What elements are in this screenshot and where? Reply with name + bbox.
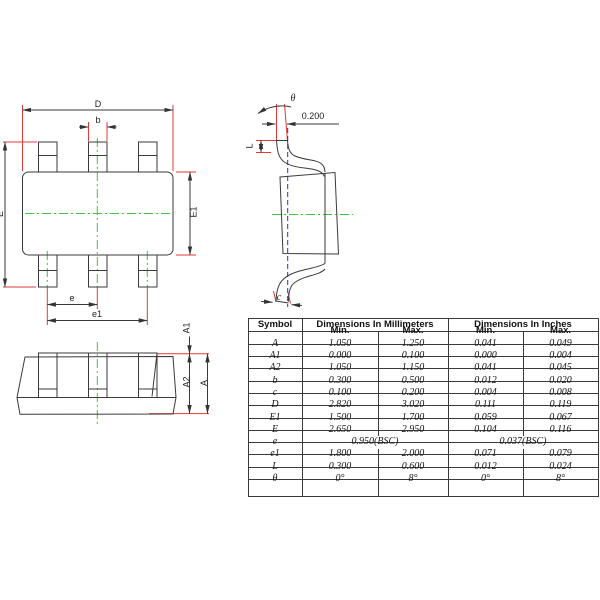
table-row: θ 0° 8° 0° 8° (248, 473, 598, 485)
dim-label-theta: θ (287, 93, 299, 104)
cell-mm-max: 3.020 (378, 399, 448, 411)
cell-in-max: 0.119 (523, 399, 598, 411)
table-row: A 1.050 1.250 0.041 0.049 (248, 338, 598, 350)
cell-in-max: 0.079 (523, 448, 598, 460)
cell-in-min: 0.012 (448, 461, 523, 473)
cell-mm-max: 0.100 (378, 350, 448, 362)
cell-in-max: 0.008 (523, 387, 598, 399)
cell-in-min: 0.004 (448, 387, 523, 399)
dim-label-E: E (0, 209, 6, 219)
table-row: L 0.300 0.600 0.012 0.024 (248, 461, 598, 473)
centerlines (25, 138, 171, 288)
dim-label-A1: A1 (179, 323, 194, 333)
side-extension-lines (256, 104, 291, 304)
cell-mm-max: 1.700 (378, 412, 448, 424)
height-dimensions (190, 337, 208, 414)
cell-in-max: 0.045 (523, 362, 598, 374)
cell-symbol: b (248, 375, 302, 387)
cell-mm-min: 0.100 (302, 387, 378, 399)
cell-in-min: 0.111 (448, 399, 523, 411)
cell-mm-min: 2.820 (302, 399, 378, 411)
cell-symbol: D (248, 399, 302, 411)
dim-label-b: b (92, 115, 104, 125)
table-border-right (598, 318, 599, 497)
table-row: A2 1.050 1.150 0.041 0.045 (248, 362, 598, 374)
dimensions-table: Symbol Dimensions In Millimeters Dimensi… (248, 318, 599, 497)
cell-mm-max: 8° (378, 473, 448, 485)
drawing-canvas (0, 0, 600, 600)
cell-mm-bsc: 0.950(BSC) (302, 436, 448, 448)
top-view (3, 105, 196, 325)
dim-label-offset: 0.200 (293, 111, 333, 121)
table-row: b 0.300 0.500 0.012 0.020 (248, 375, 598, 387)
cell-mm-min: 0° (302, 473, 378, 485)
package-outline-drawing: D b E E1 e e1 A1 A2 A L c θ 0.200 Symbol… (0, 0, 600, 600)
dim-label-L: L (245, 141, 255, 151)
cell-in-bsc: 0.037(BSC) (448, 436, 598, 448)
cell-symbol: E1 (248, 412, 302, 424)
table-row: e 0.950(BSC) 0.037(BSC) (248, 436, 598, 448)
cell-symbol: e (248, 436, 302, 448)
cell-mm-max: 0.200 (378, 387, 448, 399)
cell-mm-max: 1.150 (378, 362, 448, 374)
table-row: c 0.100 0.200 0.004 0.008 (248, 387, 598, 399)
cell-in-min: 0.059 (448, 412, 523, 424)
cell-mm-min: 2.650 (302, 424, 378, 436)
cell-mm-min: 1.050 (302, 362, 378, 374)
cell-in-max: 0.024 (523, 461, 598, 473)
cell-in-max: 0.049 (523, 338, 598, 350)
cell-mm-max: 0.500 (378, 375, 448, 387)
cell-mm-min: 0.300 (302, 375, 378, 387)
dim-label-E1: E1 (187, 207, 201, 217)
table-border-bottom (248, 496, 598, 498)
cell-in-max: 0.116 (523, 424, 598, 436)
cell-symbol: θ (248, 473, 302, 485)
cell-in-min: 0.012 (448, 375, 523, 387)
table-row: E 2.650 2.950 0.104 0.116 (248, 424, 598, 436)
table-row: D 2.820 3.020 0.111 0.119 (248, 399, 598, 411)
side-top-lead (277, 141, 326, 177)
extension-lines (3, 105, 196, 325)
dim-label-A: A (198, 378, 210, 388)
table-row: A1 0.000 0.100 0.000 0.004 (248, 350, 598, 362)
cell-mm-min: 1.050 (302, 338, 378, 350)
header-in-min: Min. (448, 325, 523, 336)
side-body (280, 173, 339, 264)
cell-mm-max: 0.600 (378, 461, 448, 473)
header-symbol: Symbol (248, 319, 302, 330)
body-outline (17, 357, 176, 415)
cell-in-max: 0.067 (523, 412, 598, 424)
cell-in-min: 0.041 (448, 362, 523, 374)
cell-symbol: A1 (248, 350, 302, 362)
cell-mm-max: 2.000 (378, 448, 448, 460)
cell-symbol: A (248, 338, 302, 350)
dim-label-A2: A2 (179, 377, 194, 387)
cell-mm-min: 0.000 (302, 350, 378, 362)
cell-symbol: E (248, 424, 302, 436)
dim-label-e: e (66, 293, 78, 303)
cell-mm-max: 2.950 (378, 424, 448, 436)
cell-symbol: A2 (248, 362, 302, 374)
cell-in-min: 0.071 (448, 448, 523, 460)
cell-in-min: 0.041 (448, 338, 523, 350)
side-view (256, 104, 353, 307)
cell-in-max: 8° (523, 473, 598, 485)
cell-mm-min: 1.800 (302, 448, 378, 460)
table-row: E1 1.500 1.700 0.059 0.067 (248, 412, 598, 424)
header-mm-min: Min. (302, 325, 378, 336)
cell-in-min: 0° (448, 473, 523, 485)
dim-label-e1: e1 (90, 309, 104, 319)
cell-symbol: e1 (248, 448, 302, 460)
dim-label-c: c (274, 292, 284, 303)
cell-mm-min: 0.300 (302, 461, 378, 473)
table-row: e1 1.800 2.000 0.071 0.079 (248, 448, 598, 460)
cell-in-max: 0.004 (523, 350, 598, 362)
side-dimensions (258, 106, 339, 306)
dim-label-D: D (92, 99, 104, 109)
header-in-max: Max. (523, 325, 598, 336)
cell-mm-max: 1.250 (378, 338, 448, 350)
cell-in-min: 0.000 (448, 350, 523, 362)
cell-symbol: c (248, 387, 302, 399)
header-mm-max: Max. (378, 325, 448, 336)
cell-in-min: 0.104 (448, 424, 523, 436)
cell-in-max: 0.020 (523, 375, 598, 387)
cell-mm-min: 1.500 (302, 412, 378, 424)
cell-symbol: L (248, 461, 302, 473)
